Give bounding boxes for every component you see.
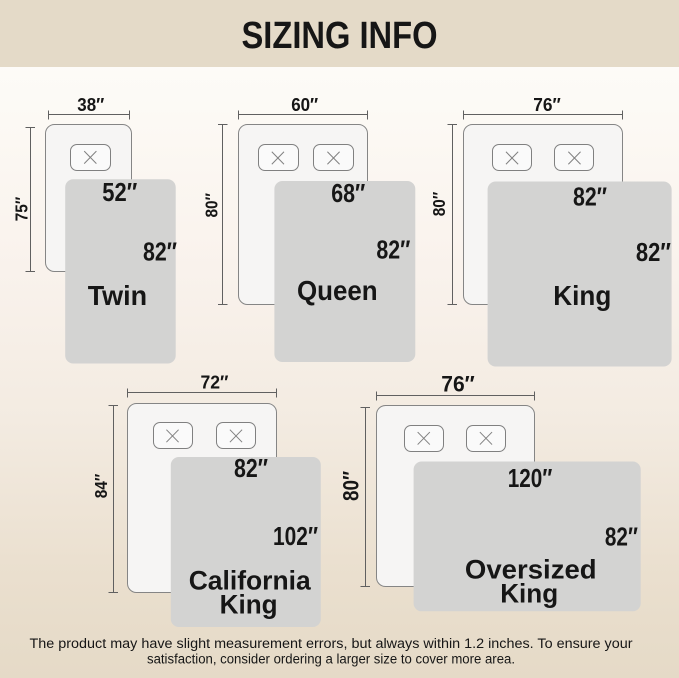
svg-text:84″: 84″ <box>91 473 111 498</box>
svg-text:68″: 68″ <box>331 178 365 208</box>
svg-text:82″: 82″ <box>143 237 177 267</box>
svg-text:82″: 82″ <box>234 453 268 483</box>
svg-text:82″: 82″ <box>636 237 671 267</box>
svg-text:52″: 52″ <box>102 177 137 207</box>
svg-text:82″: 82″ <box>573 182 607 212</box>
svg-text:King: King <box>220 590 278 620</box>
svg-text:The product may have slight me: The product may have slight measurement … <box>30 636 633 652</box>
svg-text:82″: 82″ <box>605 522 638 552</box>
svg-text:120″: 120″ <box>508 463 553 493</box>
svg-text:38″: 38″ <box>77 94 104 115</box>
svg-text:60″: 60″ <box>291 94 318 115</box>
svg-text:80″: 80″ <box>202 193 222 218</box>
svg-text:82″: 82″ <box>376 235 410 265</box>
svg-text:72″: 72″ <box>201 372 229 393</box>
svg-text:satisfaction, consider orderin: satisfaction, consider ordering a larger… <box>147 652 515 668</box>
svg-text:SIZING INFO: SIZING INFO <box>242 15 438 57</box>
svg-text:80″: 80″ <box>429 191 449 216</box>
svg-text:Queen: Queen <box>297 275 378 306</box>
svg-text:76″: 76″ <box>441 372 475 397</box>
svg-text:King: King <box>500 579 558 609</box>
svg-text:80″: 80″ <box>339 471 364 501</box>
svg-text:75″: 75″ <box>12 196 32 221</box>
svg-text:Twin: Twin <box>88 280 147 311</box>
svg-text:76″: 76″ <box>533 94 561 115</box>
svg-text:King: King <box>553 280 611 311</box>
svg-text:102″: 102″ <box>273 521 318 551</box>
